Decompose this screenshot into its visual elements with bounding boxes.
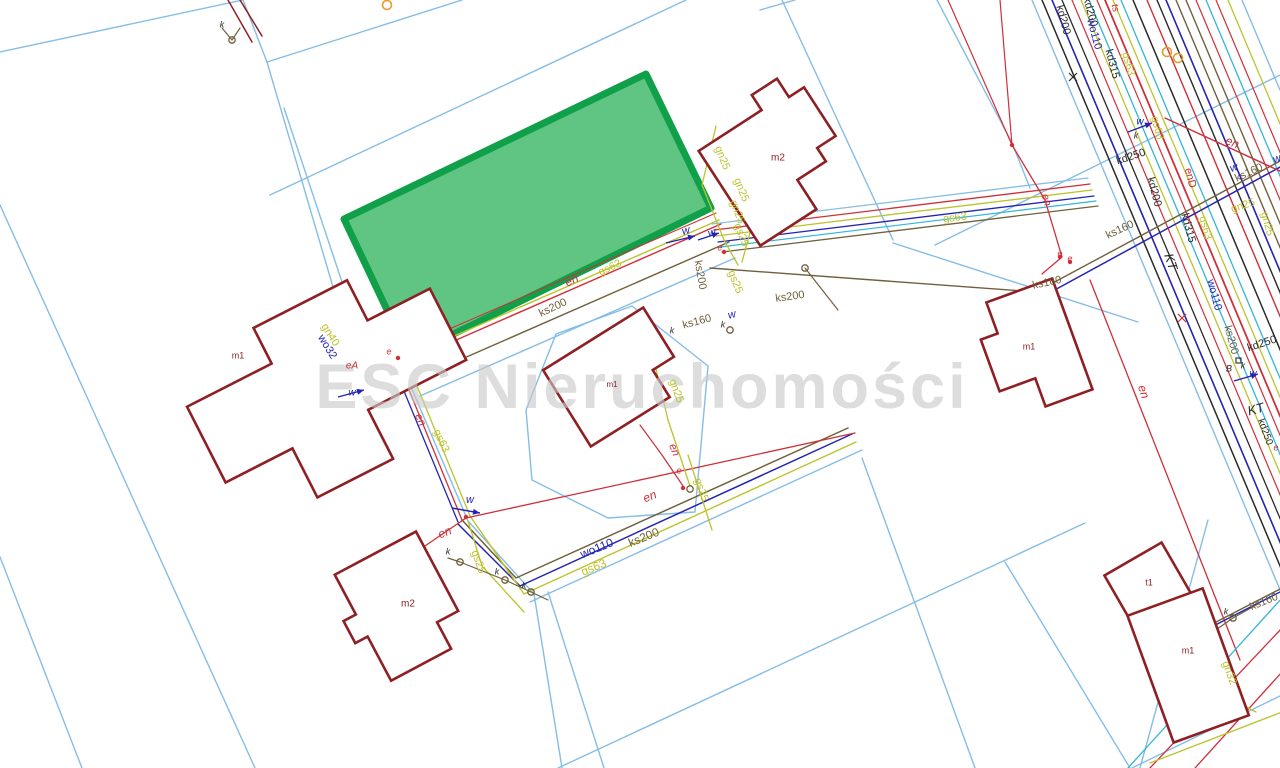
map-label-gs63: gs63 bbox=[1119, 51, 1137, 77]
parcel-boundary-line bbox=[760, 0, 795, 10]
map-label-w: w bbox=[466, 494, 475, 506]
watermark-text: ESC Nieruchomości bbox=[315, 352, 968, 422]
map-label-B: B bbox=[1226, 363, 1232, 373]
parcel-boundary-line bbox=[862, 458, 975, 768]
water-flow-arrowhead-icon bbox=[473, 509, 480, 515]
map-label-m1: m1 bbox=[1182, 645, 1195, 655]
manhole-circle-icon bbox=[727, 327, 733, 333]
parcel-boundary-line bbox=[243, 0, 267, 62]
map-label-ts: ts bbox=[1109, 3, 1122, 13]
energy-point-icon bbox=[681, 486, 685, 490]
energy-point-icon bbox=[1010, 143, 1014, 147]
parcel-boundary-line bbox=[530, 450, 862, 602]
utility-line-yl bbox=[470, 442, 856, 594]
energy-point-icon bbox=[396, 356, 400, 360]
map-label-k: k bbox=[1241, 360, 1246, 370]
map-label-KT: KT bbox=[1161, 251, 1181, 272]
map-label-m1: m1 bbox=[1023, 341, 1036, 351]
map-label-gs25: gs25 bbox=[468, 549, 487, 576]
map-label-ks160: ks160 bbox=[1233, 161, 1265, 184]
map-label-wo110: wo110 bbox=[1084, 16, 1104, 51]
map-label-en: en bbox=[1039, 193, 1054, 208]
map-label-ks200: ks200 bbox=[537, 296, 569, 319]
map-label-w: w bbox=[681, 224, 693, 238]
map-label-e: e bbox=[1057, 248, 1062, 258]
utility-line-bl bbox=[458, 434, 852, 586]
map-label-k: k bbox=[721, 319, 726, 329]
map-label-enD: enD bbox=[1182, 167, 1199, 190]
parcel-boundary-line bbox=[0, 0, 243, 52]
parcel-boundary-line bbox=[937, 0, 1030, 188]
parcel-boundary-line bbox=[1005, 562, 1130, 768]
parcel-boundary-line bbox=[0, 205, 255, 768]
map-label-ks160: ks160 bbox=[1104, 218, 1136, 241]
map-label-eA: eA bbox=[346, 361, 359, 372]
map-label-w: w bbox=[1136, 117, 1144, 128]
cadastral-map-screenshot: ESC Nieruchomości kd200kd200wo110kd315gs… bbox=[0, 0, 1280, 768]
map-label-en: en bbox=[641, 487, 659, 505]
map-label-ks160: ks160 bbox=[1248, 591, 1280, 613]
map-label-k: k bbox=[220, 19, 225, 29]
map-label-e: e bbox=[1273, 442, 1278, 452]
utility-line-br bbox=[222, 28, 240, 40]
utility-line-br bbox=[462, 428, 848, 578]
map-label-m2: m2 bbox=[771, 153, 785, 164]
parcel-boundary-line bbox=[0, 557, 82, 768]
map-label-e: e bbox=[676, 465, 681, 475]
map-label-e: e bbox=[386, 346, 391, 356]
map-label-ks200: ks200 bbox=[626, 525, 661, 550]
map-label-t1: t1 bbox=[1145, 577, 1153, 587]
map-label-k: k bbox=[446, 546, 451, 556]
parcel-boundary-line bbox=[267, 0, 462, 62]
parcel-boundary-line bbox=[558, 523, 1085, 768]
map-label-k: k bbox=[1134, 130, 1139, 140]
map-label-ks200: ks200 bbox=[692, 259, 709, 290]
map-label-k: k bbox=[495, 566, 500, 576]
map-label-en: en bbox=[436, 523, 454, 541]
utility-line-br bbox=[805, 268, 838, 310]
map-label-gs25: gs25 bbox=[725, 269, 745, 296]
map-label-kd250: kd250 bbox=[1246, 334, 1278, 355]
utility-line-bd bbox=[228, 0, 252, 42]
utility-line-rd bbox=[466, 433, 855, 518]
geodetic-map-canvas: ESC Nieruchomości kd200kd200wo110kd315gs… bbox=[0, 0, 1280, 768]
map-label-wo110: wo110 bbox=[1204, 277, 1224, 312]
utility-line-rd bbox=[1012, 145, 1062, 274]
map-label-m1: m1 bbox=[232, 350, 245, 360]
energy-point-icon bbox=[464, 515, 468, 519]
map-label-gs63: gs63 bbox=[942, 210, 967, 225]
map-label-e: e bbox=[1067, 253, 1072, 263]
utility-line-br bbox=[710, 268, 1036, 292]
map-label-m2: m2 bbox=[401, 599, 415, 610]
survey-point-icon bbox=[383, 1, 392, 10]
map-label-en: en bbox=[1135, 383, 1153, 400]
map-label-w: w bbox=[348, 388, 356, 399]
map-label-ks200: ks200 bbox=[775, 289, 806, 305]
manhole-circle-icon bbox=[687, 486, 693, 492]
map-label-k: k bbox=[1224, 606, 1229, 616]
parcel-boundary-line bbox=[548, 592, 604, 768]
map-label-w: w bbox=[707, 226, 719, 240]
map-label-k: k bbox=[670, 325, 675, 335]
map-label-w: w bbox=[727, 308, 739, 322]
map-label-w: w bbox=[1249, 369, 1257, 380]
map-label-kd200: kd200 bbox=[1053, 4, 1072, 36]
map-label-gn25: gn25 bbox=[1229, 196, 1256, 215]
utility-line-bd bbox=[240, 0, 262, 36]
map-label-gs25: gs25 bbox=[691, 477, 710, 504]
map-label-k: k bbox=[522, 580, 527, 590]
map-label-gs63: gs63 bbox=[1196, 215, 1214, 241]
map-label-m1: m1 bbox=[606, 380, 618, 389]
map-label-e: e bbox=[717, 242, 722, 252]
survey-cross-icon bbox=[1178, 314, 1186, 322]
map-label-ks160: ks160 bbox=[681, 312, 712, 331]
map-label-w: w bbox=[1271, 152, 1280, 166]
